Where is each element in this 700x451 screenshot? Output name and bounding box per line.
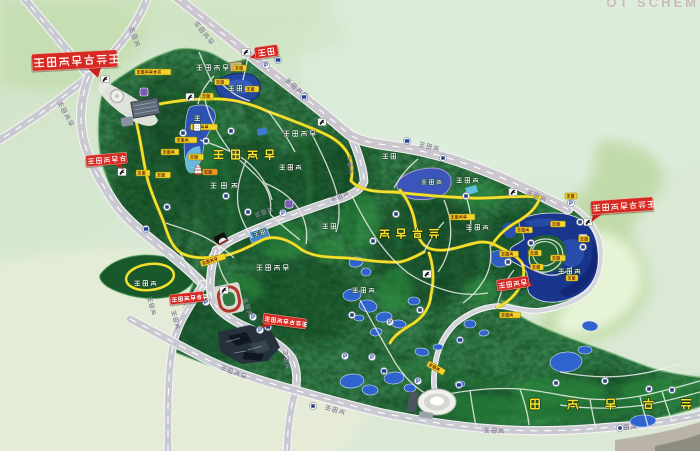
svg-text:P: P <box>264 63 268 69</box>
svg-text:P: P <box>569 201 573 207</box>
svg-text:P: P <box>281 211 285 217</box>
svg-text:P: P <box>370 355 374 361</box>
svg-text:P: P <box>343 354 347 360</box>
svg-text:P: P <box>251 315 255 321</box>
svg-text:P: P <box>388 320 392 326</box>
svg-text:P: P <box>416 379 420 385</box>
svg-text:P: P <box>258 328 262 334</box>
svg-text:OT SCHEM: OT SCHEM <box>606 0 699 10</box>
